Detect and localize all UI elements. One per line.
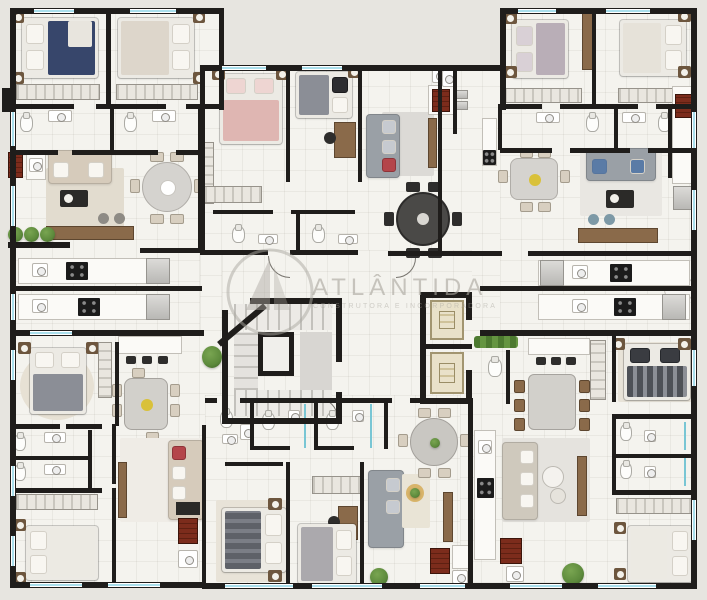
toilet: [620, 462, 632, 479]
sofa: [48, 150, 112, 184]
centerpiece: [417, 213, 429, 225]
wall: [498, 104, 502, 150]
shrub: [40, 227, 55, 242]
wall: [10, 456, 90, 460]
wall: [480, 330, 697, 336]
bath-sink: [152, 110, 176, 122]
wall: [691, 8, 697, 330]
centerpiece: [430, 438, 440, 448]
chair: [438, 468, 451, 478]
shower-glass: [684, 422, 686, 450]
nightstand: [268, 498, 282, 510]
wardrobe: [204, 186, 262, 203]
wall: [336, 298, 342, 362]
pillow: [516, 26, 533, 46]
window: [510, 584, 562, 588]
stool: [604, 214, 615, 225]
pillow: [336, 556, 352, 576]
dining-table: [142, 162, 192, 212]
dining-table: [528, 374, 576, 430]
toilet: [586, 114, 599, 132]
wall: [480, 286, 697, 291]
stool: [536, 357, 546, 365]
bed-duvet: [623, 23, 661, 73]
bath-sink: [44, 464, 66, 475]
shrub: [202, 346, 222, 368]
wall: [112, 424, 116, 484]
window: [11, 536, 15, 566]
sofa-cushion: [382, 158, 396, 172]
sofa-cushion: [88, 162, 104, 178]
bed-duvet: [50, 529, 95, 577]
planter-hedge: [474, 336, 518, 348]
cooktop: [610, 264, 632, 282]
wardrobe: [16, 84, 100, 100]
kitchen-sink: [452, 570, 468, 584]
wall: [296, 214, 300, 252]
window: [606, 9, 650, 13]
wall: [219, 8, 224, 110]
wall: [528, 251, 697, 256]
pillow: [332, 97, 348, 113]
kitchen-sink: [572, 265, 588, 279]
wall: [10, 488, 102, 493]
wardrobe: [16, 494, 98, 510]
sofa: [502, 442, 538, 520]
window: [222, 66, 266, 70]
window: [692, 190, 696, 230]
wardrobe: [616, 498, 692, 514]
wall: [286, 462, 290, 588]
kitchen-sink: [478, 440, 492, 454]
shower-glass: [684, 458, 686, 486]
bed-duvet: [631, 529, 667, 579]
centerpiece: [529, 174, 541, 186]
chair: [579, 399, 590, 412]
bath-sink: [338, 234, 358, 244]
wall: [466, 292, 472, 320]
toilet: [124, 114, 137, 132]
sofa-cushion: [386, 478, 400, 492]
dining-table: [124, 378, 168, 430]
tray: [64, 194, 73, 203]
bath-sink: [644, 430, 656, 442]
pillow: [265, 514, 282, 536]
wall: [426, 344, 472, 349]
chair: [398, 434, 408, 447]
sofa-cushion: [520, 450, 534, 464]
bed-duvet: [536, 23, 565, 75]
chair: [418, 408, 431, 418]
wall: [453, 68, 457, 134]
window: [30, 583, 82, 587]
stool: [566, 357, 576, 365]
tv-console: [428, 118, 437, 168]
shrub: [562, 563, 584, 585]
window: [30, 331, 72, 335]
kitchen-island: [118, 336, 182, 354]
wall: [96, 104, 166, 109]
wall: [10, 104, 74, 109]
wardrobe: [116, 84, 198, 100]
dining-table: [410, 418, 458, 466]
stair-flight: [234, 332, 258, 390]
wall: [250, 403, 254, 449]
wall: [10, 286, 202, 291]
wall: [202, 425, 206, 589]
toilet: [20, 114, 33, 132]
centerpiece: [161, 181, 175, 195]
chair: [384, 212, 394, 226]
tv-console: [578, 228, 658, 243]
chair: [406, 182, 420, 192]
floor-plan: ATLÂNTIDA CONSTRUTORA E INCORPORADORA: [0, 0, 707, 600]
pillow: [630, 348, 650, 363]
stool: [98, 213, 109, 224]
chair: [498, 170, 508, 183]
planter-wall: [8, 242, 70, 248]
wall: [570, 148, 630, 153]
window: [11, 112, 15, 146]
bed-duvet: [68, 21, 92, 47]
tray: [610, 194, 619, 203]
wardrobe: [504, 88, 582, 103]
stool: [588, 214, 599, 225]
nightstand: [18, 342, 31, 354]
wall: [614, 109, 618, 150]
shower-glass: [304, 404, 306, 448]
fridge: [662, 294, 686, 320]
wall: [10, 424, 60, 429]
pillow: [660, 348, 680, 363]
window: [11, 294, 15, 320]
toilet: [488, 358, 502, 377]
window: [11, 186, 15, 226]
wall: [506, 350, 510, 404]
appliance: [456, 90, 468, 99]
stair-well: [258, 332, 294, 376]
toilet: [620, 424, 632, 441]
wall: [592, 14, 596, 106]
wall: [314, 403, 318, 449]
pillow: [26, 50, 44, 70]
tv-panel: [118, 462, 127, 518]
fridge: [146, 258, 170, 284]
fridge: [673, 186, 693, 210]
sofa: [366, 114, 400, 178]
wall: [612, 490, 697, 495]
chair: [170, 384, 180, 397]
dining-table: [510, 158, 558, 200]
sofa-cushion: [630, 159, 645, 174]
wall: [500, 104, 542, 109]
chair: [130, 179, 140, 193]
elevator-car: [430, 352, 464, 394]
wall: [360, 462, 364, 588]
bed: [118, 18, 194, 78]
shrub: [24, 227, 39, 242]
window: [420, 584, 465, 588]
bed-duvet: [627, 366, 687, 397]
sofa-cushion: [172, 466, 186, 480]
pillow: [35, 352, 54, 368]
chair: [452, 212, 462, 226]
wall: [458, 65, 502, 71]
chair: [579, 380, 590, 393]
stool: [158, 356, 168, 364]
pillow: [26, 24, 44, 44]
wall: [410, 398, 472, 403]
wall: [222, 418, 342, 424]
bed: [22, 18, 98, 78]
wall: [560, 104, 638, 109]
bed: [296, 72, 352, 118]
window: [692, 112, 696, 148]
wall: [472, 583, 697, 589]
sofa-cushion: [172, 446, 186, 460]
bed-duvet: [121, 21, 169, 75]
wall: [112, 488, 116, 588]
nightstand: [268, 570, 282, 582]
wall: [612, 336, 616, 402]
pillow: [516, 52, 533, 72]
wall: [72, 150, 158, 155]
wall: [286, 68, 290, 182]
nightstand: [678, 338, 691, 350]
sofa-cushion: [172, 486, 186, 500]
appliance: [456, 101, 468, 110]
chair: [438, 408, 451, 418]
wall: [612, 414, 697, 419]
elevator-car: [430, 300, 464, 340]
window: [598, 584, 656, 588]
stove: [500, 538, 522, 564]
window: [692, 500, 696, 540]
bath-sink: [48, 110, 72, 122]
wall: [66, 424, 102, 429]
sofa-cushion: [382, 120, 396, 134]
wall: [225, 462, 283, 466]
wc-sink: [222, 434, 238, 444]
window: [130, 9, 176, 13]
wall: [290, 250, 358, 255]
chair: [170, 404, 180, 417]
kitchen-sink: [32, 299, 48, 313]
wall: [468, 398, 473, 588]
sofa-cushion: [382, 140, 396, 154]
cooktop: [483, 150, 496, 165]
wall: [2, 88, 10, 112]
wall: [140, 248, 202, 253]
stove: [430, 548, 450, 574]
desk-chair: [324, 132, 336, 144]
centerpiece: [141, 399, 153, 411]
chair: [560, 170, 570, 183]
tv-panel: [443, 492, 453, 542]
chair: [170, 214, 184, 224]
stove: [178, 518, 198, 544]
bed: [620, 20, 686, 76]
cooktop: [614, 298, 636, 316]
chair: [514, 380, 525, 393]
chair: [514, 418, 525, 431]
stool: [126, 356, 136, 364]
wall: [110, 109, 114, 151]
kitchen-counter: [176, 502, 200, 515]
wall: [250, 446, 290, 450]
bath-sink: [622, 112, 646, 123]
bath-sink: [536, 112, 560, 123]
tv-console: [46, 226, 134, 240]
side-table: [406, 484, 424, 502]
sofa-cushion: [386, 500, 400, 514]
desk: [334, 122, 356, 158]
wall: [10, 150, 58, 155]
sofa-cushion: [592, 159, 607, 174]
plant: [410, 488, 420, 498]
coffee-table: [550, 488, 566, 504]
wall: [358, 68, 362, 182]
window: [34, 9, 74, 13]
wall: [106, 14, 111, 106]
pillow: [172, 50, 190, 70]
sofa: [368, 470, 404, 548]
chair: [520, 202, 533, 212]
shelf-unit: [590, 340, 606, 400]
window: [11, 466, 15, 496]
pillow: [672, 531, 688, 551]
wall: [222, 310, 228, 420]
wall: [438, 65, 442, 255]
wall: [213, 210, 273, 214]
kitchen-sink: [572, 299, 588, 313]
bed: [628, 526, 692, 582]
bed: [298, 524, 356, 584]
wall: [668, 108, 672, 178]
tv-panel: [577, 456, 587, 516]
stool: [142, 356, 152, 364]
bed-duvet: [223, 100, 279, 141]
coffee-table: [542, 466, 564, 488]
chair: [538, 202, 551, 212]
cooktop: [66, 262, 88, 280]
fridge: [146, 294, 170, 320]
window: [11, 350, 15, 380]
wall: [612, 454, 697, 458]
wall: [314, 446, 354, 450]
wall: [388, 251, 502, 256]
coffee-table: [60, 190, 88, 207]
window: [312, 584, 382, 588]
bed: [26, 526, 98, 580]
pillow: [332, 77, 348, 93]
kitchen-sink: [506, 566, 524, 582]
toilet: [232, 226, 245, 243]
wall: [115, 342, 119, 426]
pillow: [61, 352, 80, 368]
sofa-cushion: [53, 162, 69, 178]
pillow: [265, 542, 282, 564]
pillow: [672, 556, 688, 576]
bed-duvet: [33, 374, 83, 411]
pillow: [30, 555, 47, 574]
pillow: [30, 531, 47, 550]
sofa-cushion: [520, 472, 534, 486]
bath-sink: [258, 234, 278, 244]
window: [108, 583, 160, 587]
wall: [500, 8, 506, 110]
stool: [551, 357, 561, 365]
pillow: [665, 25, 682, 45]
bed: [512, 20, 568, 78]
nightstand: [614, 522, 626, 534]
bath-sink: [644, 466, 656, 478]
bath-sink: [352, 410, 364, 422]
wall: [656, 104, 697, 109]
fridge: [540, 260, 564, 286]
chair: [418, 468, 431, 478]
sofa-cushion: [520, 494, 534, 508]
wall: [384, 403, 388, 449]
coffee-table: [606, 190, 634, 208]
kitchen-sink: [29, 158, 43, 172]
bed: [30, 348, 86, 414]
kitchen-island: [528, 338, 590, 355]
wall: [648, 148, 697, 153]
wall: [500, 148, 552, 153]
pillow: [254, 78, 274, 94]
chair: [132, 368, 145, 378]
chair: [579, 418, 590, 431]
stair-landing: [300, 332, 332, 390]
chair: [514, 399, 525, 412]
window: [225, 584, 293, 588]
window: [518, 9, 556, 13]
bed: [220, 74, 282, 144]
chair: [150, 214, 164, 224]
pillow: [172, 24, 190, 44]
toilet: [312, 226, 325, 243]
wall: [291, 210, 355, 214]
wall: [200, 250, 268, 255]
window: [692, 350, 696, 386]
wall: [186, 104, 224, 109]
shower-glass: [370, 404, 372, 448]
window: [302, 66, 342, 70]
wall: [205, 398, 217, 403]
bed-duvet: [301, 527, 333, 581]
kitchen-sink: [32, 263, 48, 277]
wardrobe: [98, 342, 112, 398]
wardrobe: [312, 476, 362, 494]
bed-duvet: [225, 511, 261, 569]
cooktop: [78, 298, 100, 316]
nightstand: [614, 568, 626, 580]
wall: [200, 65, 205, 252]
cooktop: [477, 478, 494, 498]
bed-duvet: [299, 75, 329, 115]
pillow: [226, 78, 246, 94]
nightstand: [678, 66, 691, 78]
bed: [624, 344, 690, 400]
stool: [114, 213, 125, 224]
kitchen-sink: [178, 550, 198, 568]
bed: [222, 508, 286, 572]
wall: [10, 252, 16, 334]
bath-sink: [44, 432, 66, 443]
pillow: [336, 530, 352, 550]
